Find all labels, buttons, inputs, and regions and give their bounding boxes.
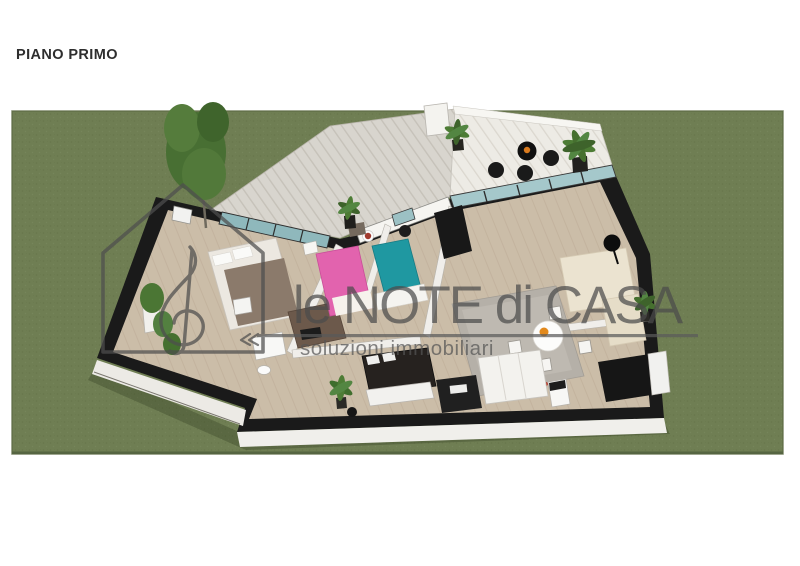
deck-post bbox=[424, 103, 450, 136]
toilet bbox=[258, 366, 271, 375]
chair bbox=[508, 340, 522, 354]
washer bbox=[233, 297, 252, 315]
grill bbox=[604, 235, 621, 252]
watermark-brand: le NOTE di CASA bbox=[293, 279, 681, 332]
laundry-basket bbox=[399, 225, 411, 237]
chair bbox=[578, 340, 592, 354]
outdoor-chair bbox=[488, 162, 504, 178]
fridge bbox=[648, 351, 670, 395]
kitchen-counter-black bbox=[436, 375, 482, 413]
floor-plan-page: PIANO PRIMO bbox=[0, 0, 800, 566]
watermark-tagline: soluzioni immobiliari bbox=[300, 339, 494, 360]
outdoor-chair bbox=[517, 165, 533, 181]
outdoor-chair bbox=[543, 150, 559, 166]
orange-bowl bbox=[524, 147, 530, 153]
kitchen-stool bbox=[347, 407, 357, 417]
